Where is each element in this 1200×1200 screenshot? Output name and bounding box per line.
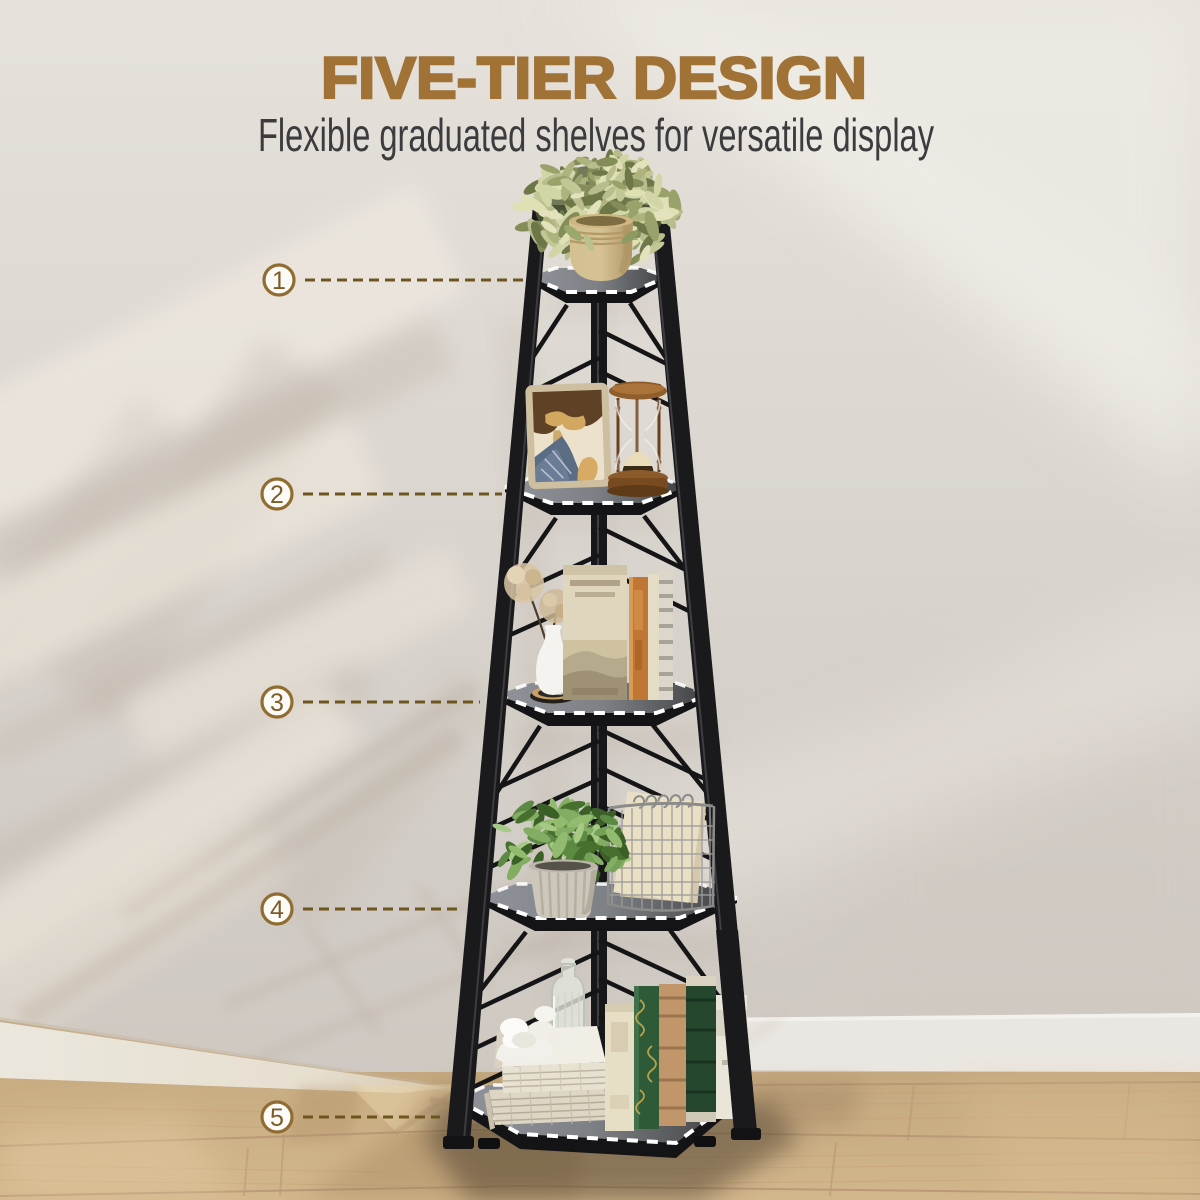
svg-text:2: 2 [270, 481, 284, 509]
svg-text:5: 5 [270, 1104, 284, 1132]
svg-text:3: 3 [270, 689, 284, 717]
svg-text:FIVE-TIER DESIGN: FIVE-TIER DESIGN [321, 46, 867, 111]
svg-text:1: 1 [272, 267, 286, 295]
svg-text:Flexible graduated shelves for: Flexible graduated shelves for versatile… [258, 109, 934, 161]
svg-text:4: 4 [270, 896, 284, 924]
